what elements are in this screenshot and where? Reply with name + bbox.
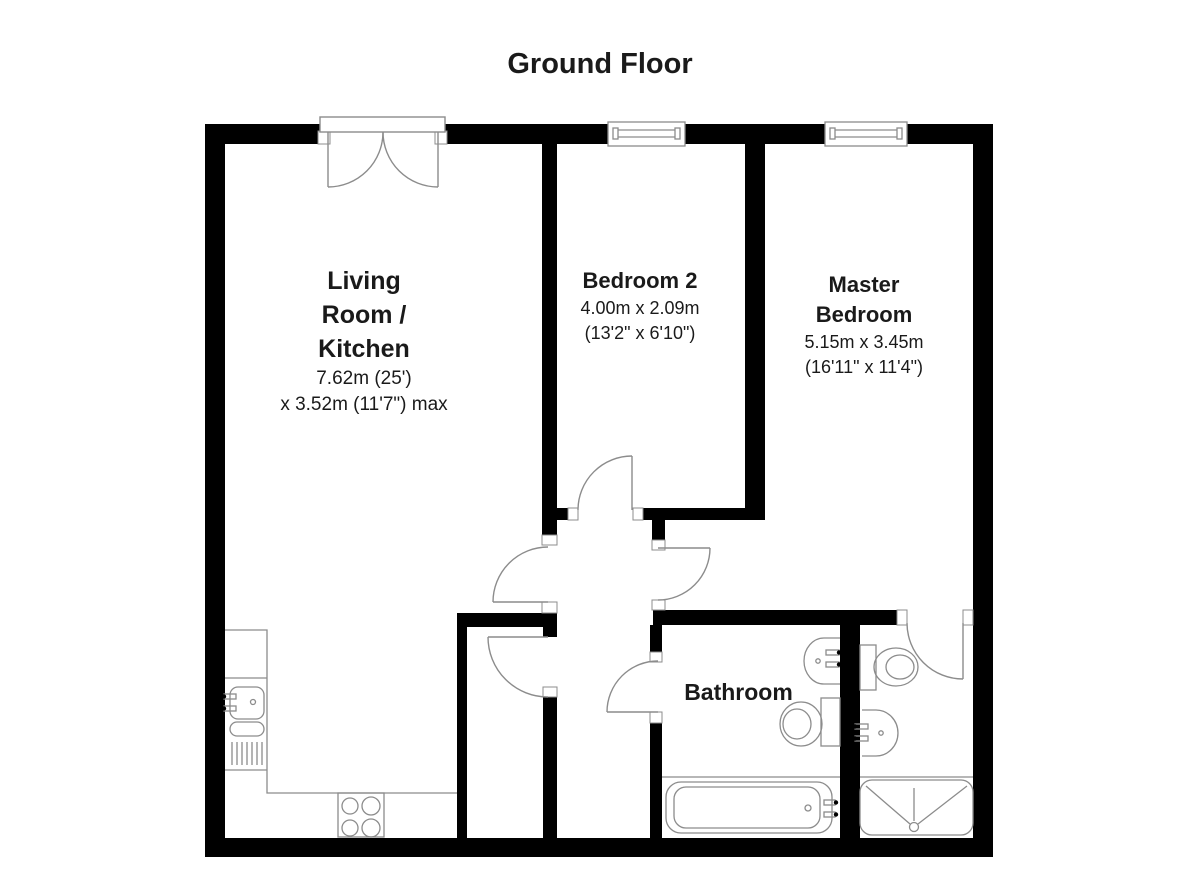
door-bedroom2 [578,456,632,510]
room-name-line: Kitchen [214,332,514,366]
room-label-bathroom: Bathroom [646,677,831,707]
room-dimensions: (13'2" x 6'10") [530,321,750,346]
room-name-line: Room / [214,298,514,332]
bathtub [666,782,838,833]
kitchen-sink [222,687,264,765]
window-bedroom2 [608,122,685,146]
room-dimensions: 4.00m x 2.09m [530,296,750,321]
door-living-room [493,547,548,602]
door-closet [488,637,548,697]
page-title: Ground Floor [430,48,770,81]
room-label-bedroom2: Bedroom 2 4.00m x 2.09m (13'2" x 6'10") [530,266,750,346]
kitchen-counter [225,630,457,793]
room-name: Bedroom 2 [530,266,750,296]
floorplan: Ground Floor Living Room / Kitchen 7.62m… [0,0,1200,873]
room-name-line: Master [754,270,974,300]
room-name-line: Bedroom [754,300,974,330]
kitchen-hob [338,793,384,837]
door-master-bedroom [658,548,710,600]
french-doors [320,117,445,187]
window-master-bedroom [825,122,907,146]
room-name: Bathroom [646,677,831,707]
walls [205,124,993,857]
floorplan-drawing [0,0,1200,873]
room-name-line: Living [214,264,514,298]
room-dimensions: (16'11" x 11'4") [754,355,974,380]
door-jambs [318,131,973,723]
room-dimensions: 5.15m x 3.45m [754,330,974,355]
room-dimensions: 7.62m (25') [214,366,514,392]
room-label-living-kitchen: Living Room / Kitchen 7.62m (25') x 3.52… [214,264,514,418]
shower-tray [860,780,973,835]
door-ensuite [907,623,963,679]
ensuite-toilet [860,645,918,690]
room-label-master-bedroom: Master Bedroom 5.15m x 3.45m (16'11" x 1… [754,270,974,380]
room-dimensions: x 3.52m (11'7") max [214,392,514,418]
